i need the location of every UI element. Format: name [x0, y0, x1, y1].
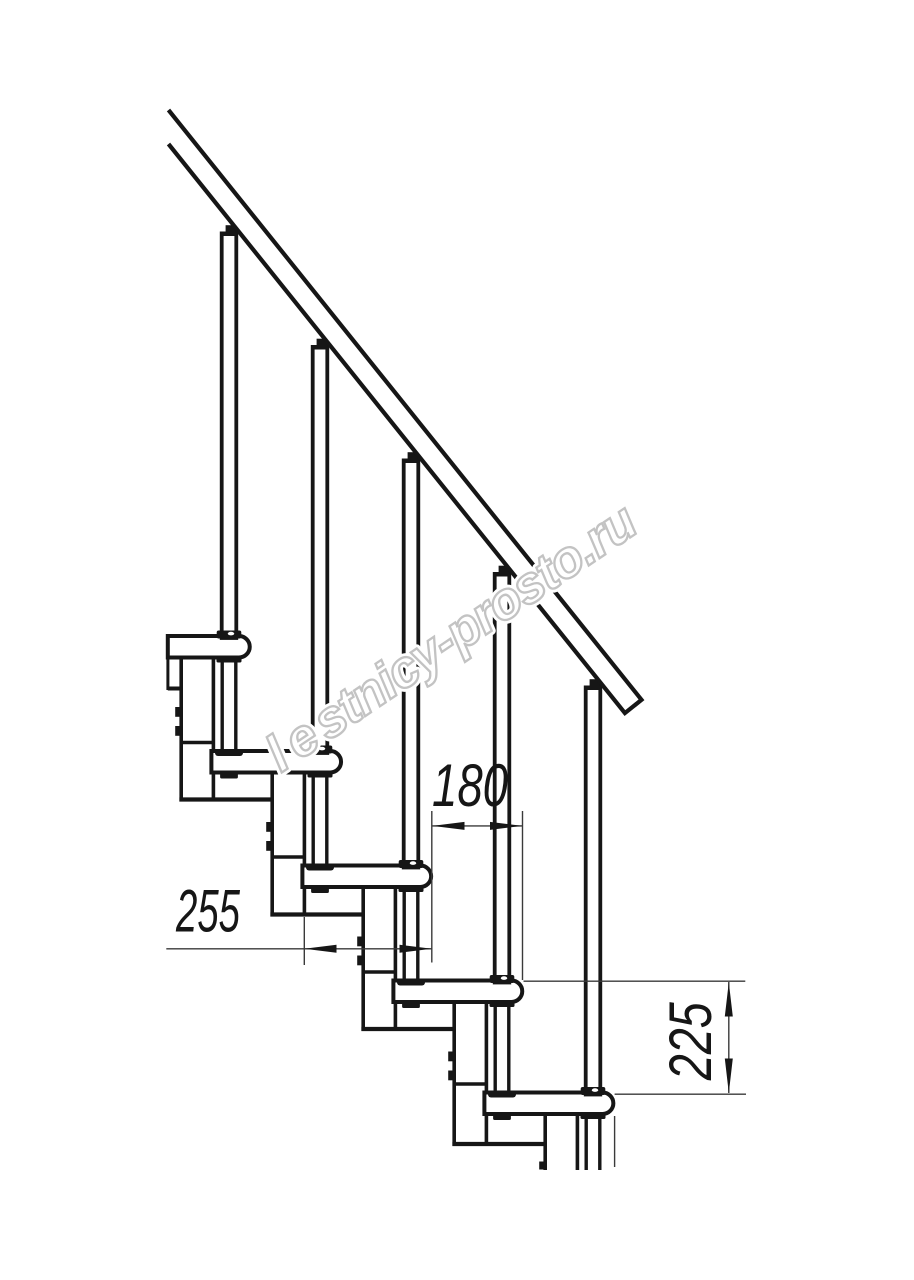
- svg-text:180: 180: [432, 752, 508, 819]
- svg-text:225: 225: [657, 1002, 724, 1081]
- svg-text:255: 255: [175, 878, 240, 945]
